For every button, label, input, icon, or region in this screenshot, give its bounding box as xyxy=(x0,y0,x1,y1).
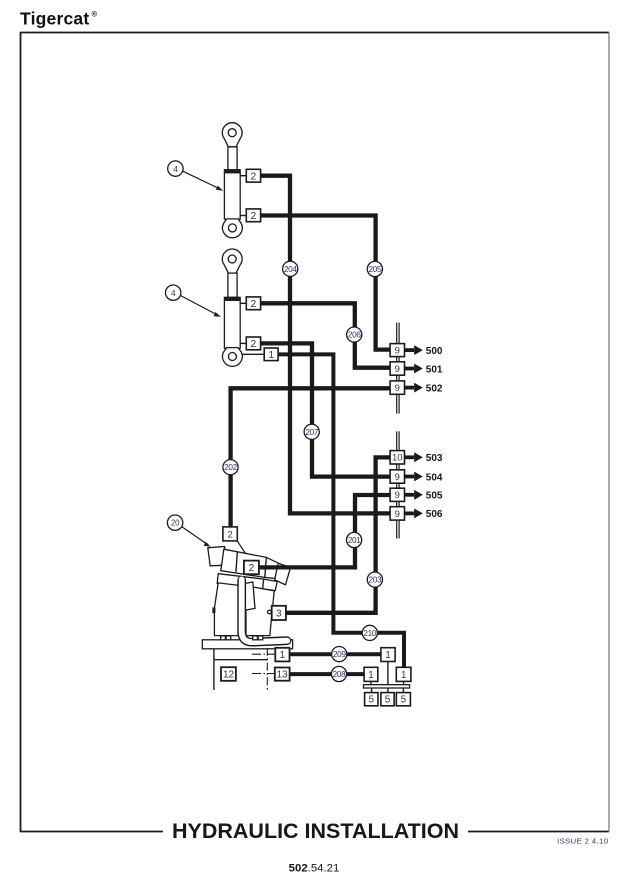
svg-text:9: 9 xyxy=(395,346,400,357)
svg-text:2: 2 xyxy=(251,339,257,350)
svg-text:502: 502 xyxy=(426,383,443,394)
svg-text:HYDRAULIC INSTALLATION: HYDRAULIC INSTALLATION xyxy=(172,819,459,843)
svg-text:13: 13 xyxy=(277,670,289,681)
svg-text:9: 9 xyxy=(395,490,400,501)
svg-text:504: 504 xyxy=(426,472,443,483)
svg-text:9: 9 xyxy=(395,472,400,483)
svg-text:1: 1 xyxy=(368,670,374,681)
svg-text:1: 1 xyxy=(385,650,391,661)
svg-text:2: 2 xyxy=(227,529,232,540)
svg-text:2: 2 xyxy=(251,171,257,182)
svg-text:1: 1 xyxy=(268,350,274,361)
svg-text:Tigercat: Tigercat xyxy=(20,9,89,29)
svg-text:12: 12 xyxy=(223,670,235,681)
svg-text:210: 210 xyxy=(363,629,377,638)
svg-text:10: 10 xyxy=(392,453,403,464)
svg-text:®: ® xyxy=(92,10,98,19)
svg-text:501: 501 xyxy=(426,364,443,375)
svg-text:9: 9 xyxy=(395,364,400,375)
svg-text:20: 20 xyxy=(171,519,180,528)
svg-text:4: 4 xyxy=(171,288,176,298)
svg-text:205: 205 xyxy=(369,265,383,274)
svg-text:2: 2 xyxy=(251,211,257,222)
svg-text:5: 5 xyxy=(401,695,407,706)
svg-text:201: 201 xyxy=(348,536,362,545)
svg-text:5: 5 xyxy=(385,695,391,706)
svg-text:502.54.21: 502.54.21 xyxy=(289,863,340,875)
svg-text:1: 1 xyxy=(401,670,407,681)
svg-text:506: 506 xyxy=(426,509,443,520)
svg-text:505: 505 xyxy=(426,491,443,502)
svg-text:209: 209 xyxy=(333,650,347,659)
svg-text:3: 3 xyxy=(276,609,282,620)
svg-text:9: 9 xyxy=(395,509,400,520)
svg-text:5: 5 xyxy=(369,695,375,706)
svg-text:206: 206 xyxy=(348,331,362,340)
svg-text:503: 503 xyxy=(426,453,443,464)
svg-text:202: 202 xyxy=(224,463,238,472)
svg-text:ISSUE 2 4.10: ISSUE 2 4.10 xyxy=(557,837,608,846)
svg-text:2: 2 xyxy=(251,299,257,310)
svg-text:500: 500 xyxy=(426,346,443,357)
svg-text:204: 204 xyxy=(284,265,298,274)
svg-text:208: 208 xyxy=(333,670,347,679)
svg-text:4: 4 xyxy=(173,164,178,174)
svg-text:9: 9 xyxy=(395,383,400,394)
svg-text:203: 203 xyxy=(369,576,383,585)
svg-text:1: 1 xyxy=(280,650,286,661)
svg-text:2: 2 xyxy=(249,563,255,574)
svg-text:207: 207 xyxy=(305,428,319,437)
